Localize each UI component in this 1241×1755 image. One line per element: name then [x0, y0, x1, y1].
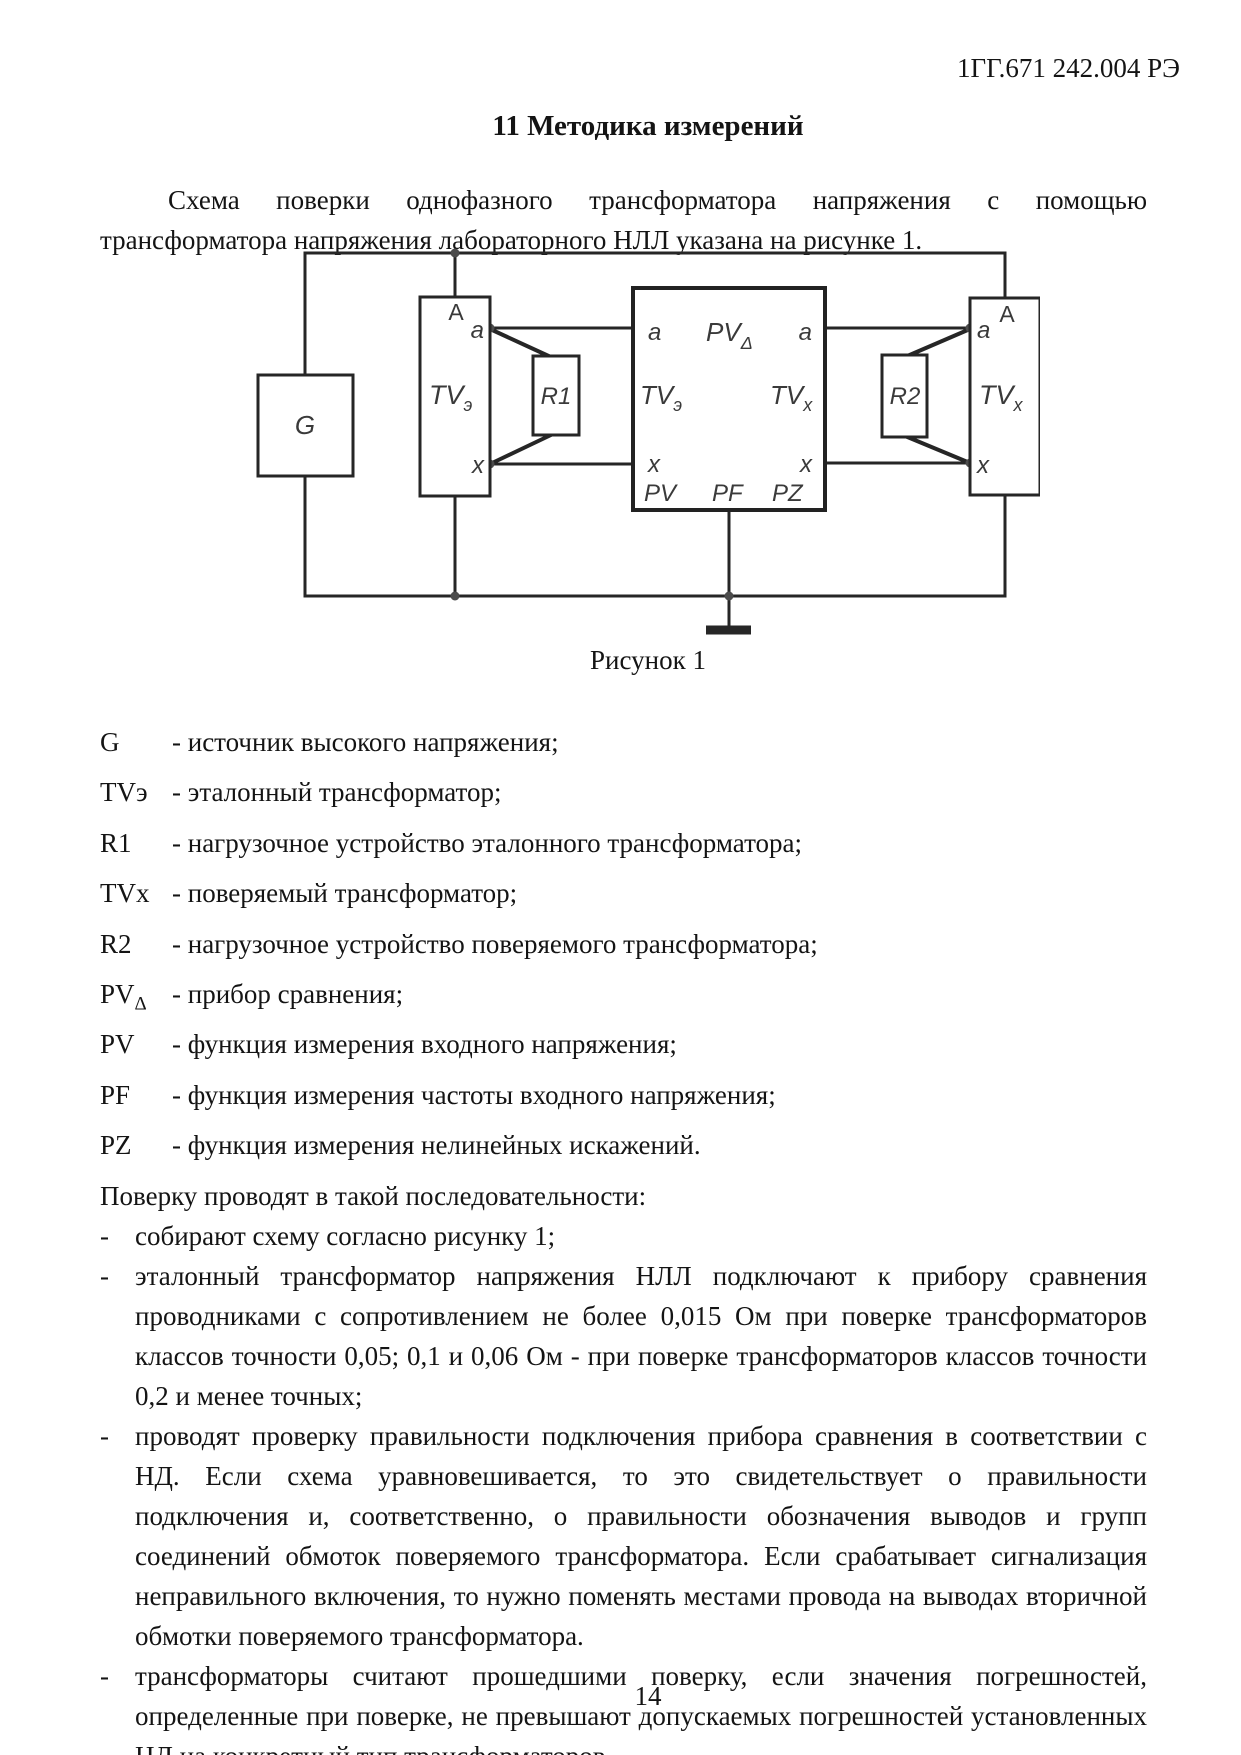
- r1-label: R1: [541, 383, 572, 410]
- procedure-item-3: - проводят проверку правильности подключ…: [100, 1416, 1147, 1656]
- comparator-pf-label: PF: [712, 480, 744, 507]
- procedure-item-2: - эталонный трансформатор напряжения НЛЛ…: [100, 1256, 1147, 1416]
- r1-top-lead: [490, 329, 553, 358]
- legend-desc: - источник высокого напряжения;: [172, 722, 1147, 772]
- procedure-item-text: эталонный трансформатор напряжения НЛЛ п…: [135, 1256, 1147, 1416]
- legend-term: R2: [100, 924, 172, 974]
- page-number: 14: [128, 1676, 1168, 1716]
- legend-desc: - поверяемый трансформатор;: [172, 873, 1147, 923]
- procedure-item-text: проводят проверку правильности подключен…: [135, 1416, 1147, 1656]
- tve-terminal-a-label: a: [471, 317, 484, 344]
- procedure-lead: Поверку проводят в такой последовательно…: [100, 1176, 1147, 1216]
- tve-terminal-A-label: A: [448, 299, 464, 325]
- comparator-pz-label: PZ: [772, 480, 804, 507]
- legend-term: TVэ: [100, 772, 172, 822]
- legend-desc: - функция измерения нелинейных искажений…: [172, 1125, 1147, 1175]
- tve-terminal-x-label: x: [471, 452, 485, 479]
- comparator-left-x-label: x: [647, 451, 661, 478]
- tvx-terminal-A-label: A: [999, 301, 1015, 327]
- r2-bottom-lead: [905, 436, 970, 463]
- legend-row-g: G - источник высокого напряжения;: [100, 722, 1147, 772]
- legend-desc: - прибор сравнения;: [172, 974, 1147, 1024]
- bullet-marker: -: [100, 1256, 135, 1416]
- r2-label: R2: [890, 383, 921, 410]
- legend-row-r2: R2 - нагрузочное устройство поверяемого …: [100, 924, 1147, 974]
- legend-desc: - нагрузочное устройство поверяемого тра…: [172, 924, 1147, 974]
- circuit-diagram: G A a TVэ x R1 a PVΔ a TVэ TVх x x PV PF…: [230, 225, 1040, 635]
- legend-desc: - функция измерения частоты входного нап…: [172, 1075, 1147, 1125]
- legend-desc: - эталонный трансформатор;: [172, 772, 1147, 822]
- legend-row-pz: PZ - функция измерения нелинейных искаже…: [100, 1125, 1147, 1175]
- legend-term: PZ: [100, 1125, 172, 1175]
- legend-term: TVх: [100, 873, 172, 923]
- legend-term: PVΔ: [100, 974, 172, 1024]
- bullet-marker: -: [100, 1416, 135, 1656]
- procedure-item-1: - собирают схему согласно рисунку 1;: [100, 1216, 1147, 1256]
- comparator-pv-label: PV: [644, 480, 678, 507]
- legend-row-pv: PV - функция измерения входного напряжен…: [100, 1024, 1147, 1074]
- junction-dot: [725, 592, 734, 601]
- g-label: G: [295, 410, 315, 440]
- bullet-marker: -: [100, 1216, 135, 1256]
- legend-desc: - нагрузочное устройство эталонного тран…: [172, 823, 1147, 873]
- legend-term: G: [100, 722, 172, 772]
- tvx-terminal-a-label: a: [977, 317, 990, 344]
- figure-caption: Рисунок 1: [128, 640, 1168, 680]
- procedure-item-text: собирают схему согласно рисунку 1;: [135, 1216, 1147, 1256]
- legend-row-tve: TVэ - эталонный трансформатор;: [100, 772, 1147, 822]
- tvx-terminal-x-label: x: [976, 452, 990, 479]
- legend-term: R1: [100, 823, 172, 873]
- legend-row-pf: PF - функция измерения частоты входного …: [100, 1075, 1147, 1125]
- legend-and-procedure: G - источник высокого напряжения; TVэ - …: [100, 722, 1147, 1755]
- legend-row-pv-delta: PVΔ - прибор сравнения;: [100, 974, 1147, 1024]
- legend-term: PV: [100, 1024, 172, 1074]
- r1-bottom-lead: [490, 434, 553, 464]
- junction-dot: [451, 592, 460, 601]
- legend-term: PF: [100, 1075, 172, 1125]
- document-page: 1ГГ.671 242.004 РЭ 11 Методика измерений…: [0, 0, 1241, 1755]
- document-number: 1ГГ.671 242.004 РЭ: [128, 52, 1180, 85]
- r2-top-lead: [905, 329, 970, 357]
- legend-row-r1: R1 - нагрузочное устройство эталонного т…: [100, 823, 1147, 873]
- comparator-left-a-label: a: [648, 319, 661, 346]
- legend-desc: - функция измерения входного напряжения;: [172, 1024, 1147, 1074]
- comparator-right-x-label: x: [799, 451, 813, 478]
- comparator-right-a-label: a: [799, 319, 812, 346]
- junction-dot: [451, 249, 460, 258]
- legend-row-tvx: TVх - поверяемый трансформатор;: [100, 873, 1147, 923]
